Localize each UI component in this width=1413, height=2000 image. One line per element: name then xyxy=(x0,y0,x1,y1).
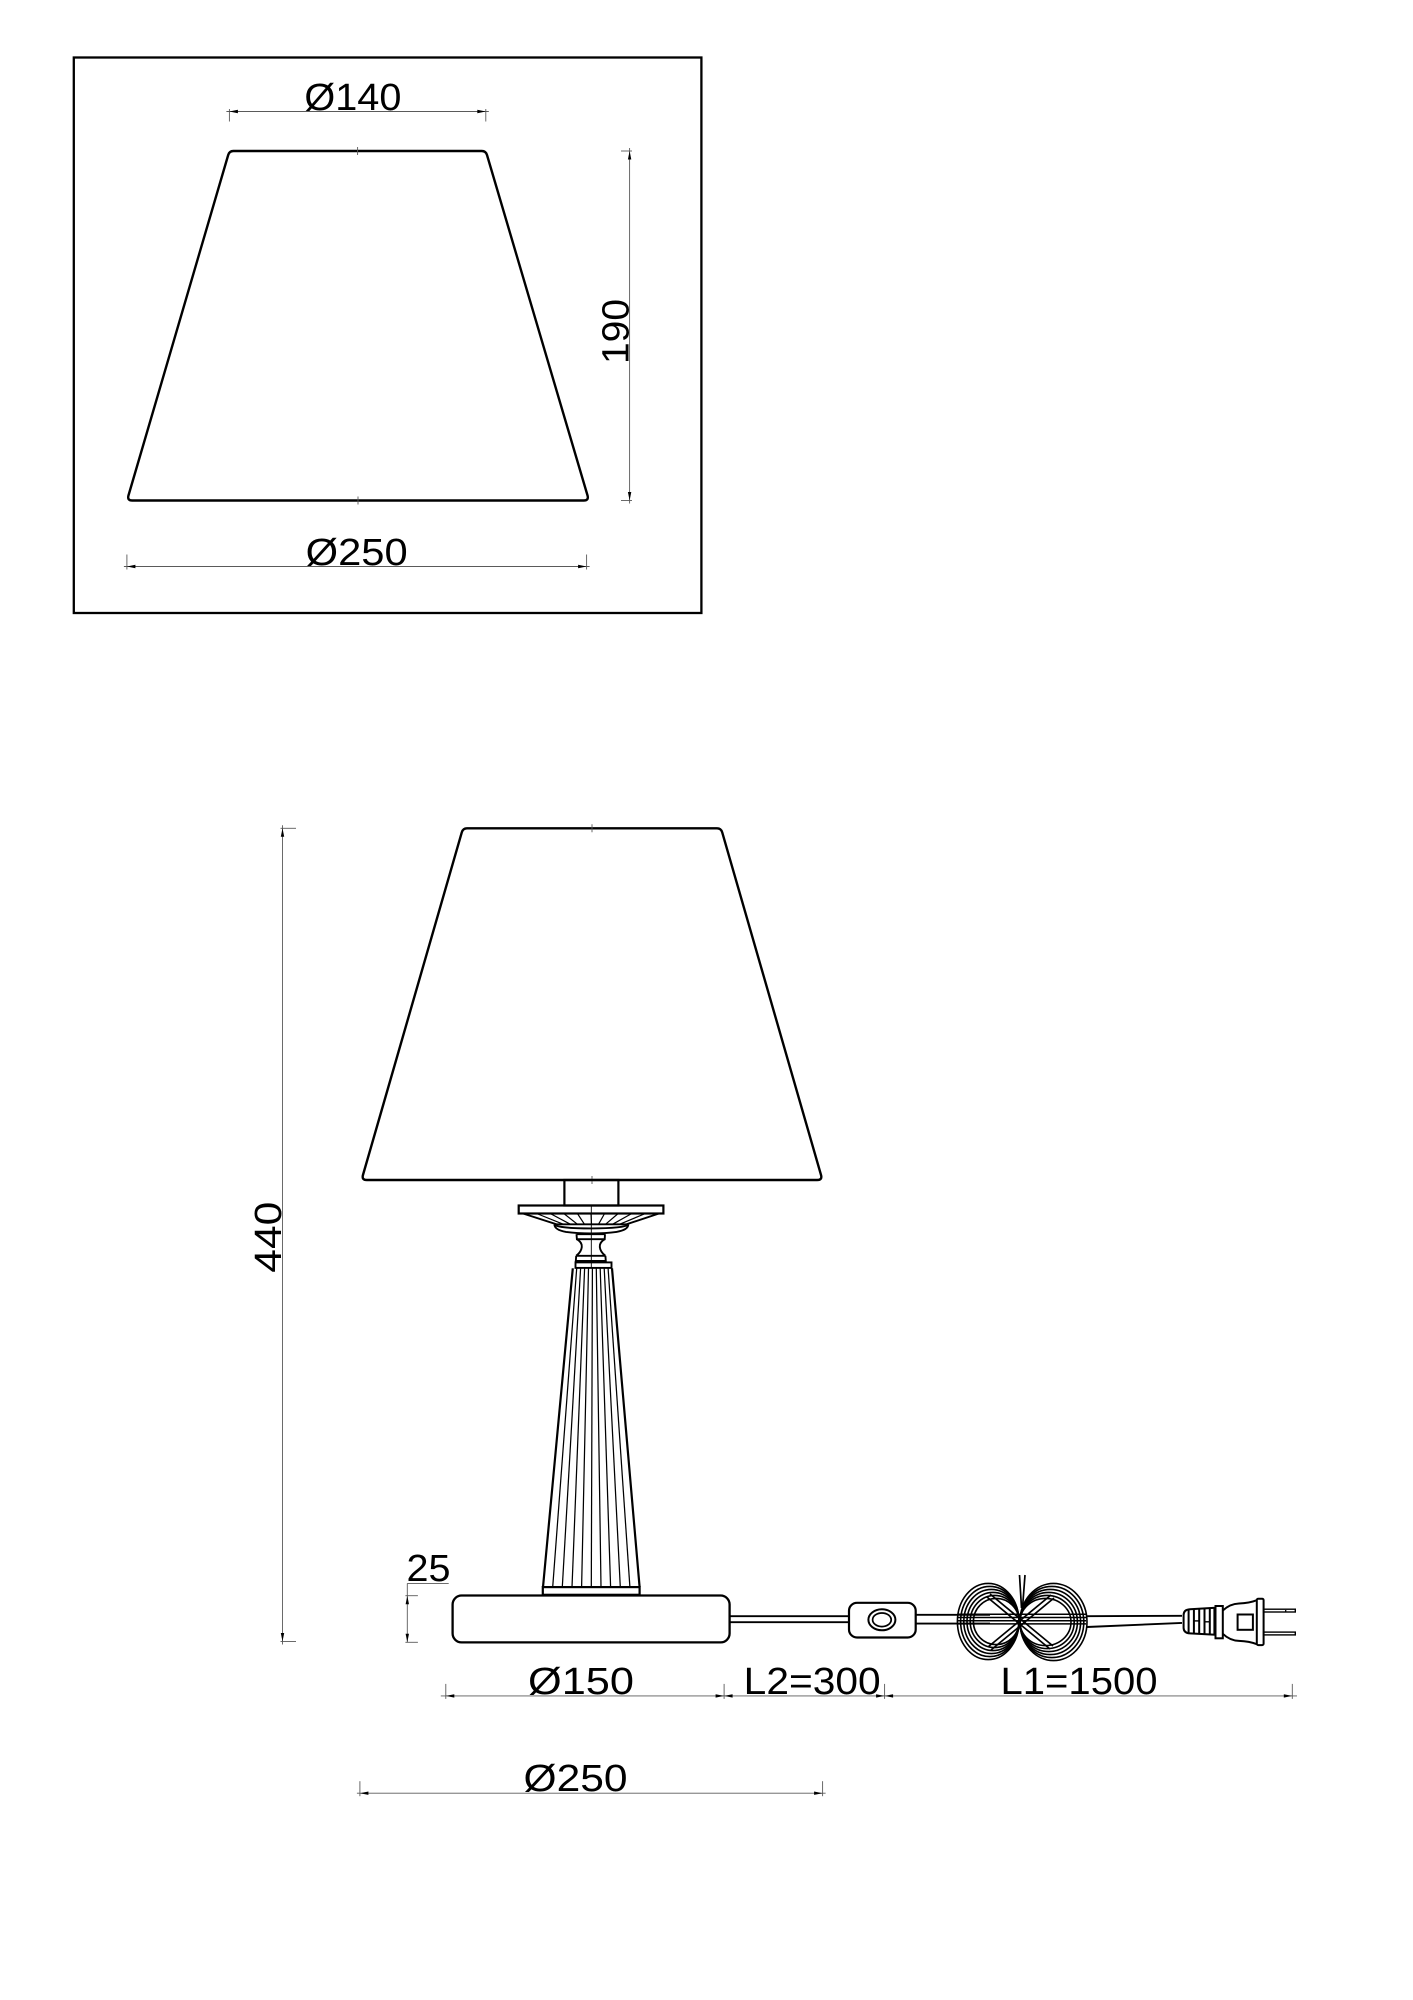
svg-text:Ø140: Ø140 xyxy=(304,77,401,119)
svg-text:440: 440 xyxy=(248,1202,290,1273)
svg-text:190: 190 xyxy=(595,299,637,364)
svg-text:L1=1500: L1=1500 xyxy=(1001,1661,1158,1703)
svg-text:Ø250: Ø250 xyxy=(306,532,408,574)
svg-text:25: 25 xyxy=(407,1548,451,1590)
svg-text:L2=300: L2=300 xyxy=(744,1661,881,1703)
svg-text:Ø250: Ø250 xyxy=(524,1758,628,1800)
svg-text:Ø150: Ø150 xyxy=(528,1661,634,1703)
